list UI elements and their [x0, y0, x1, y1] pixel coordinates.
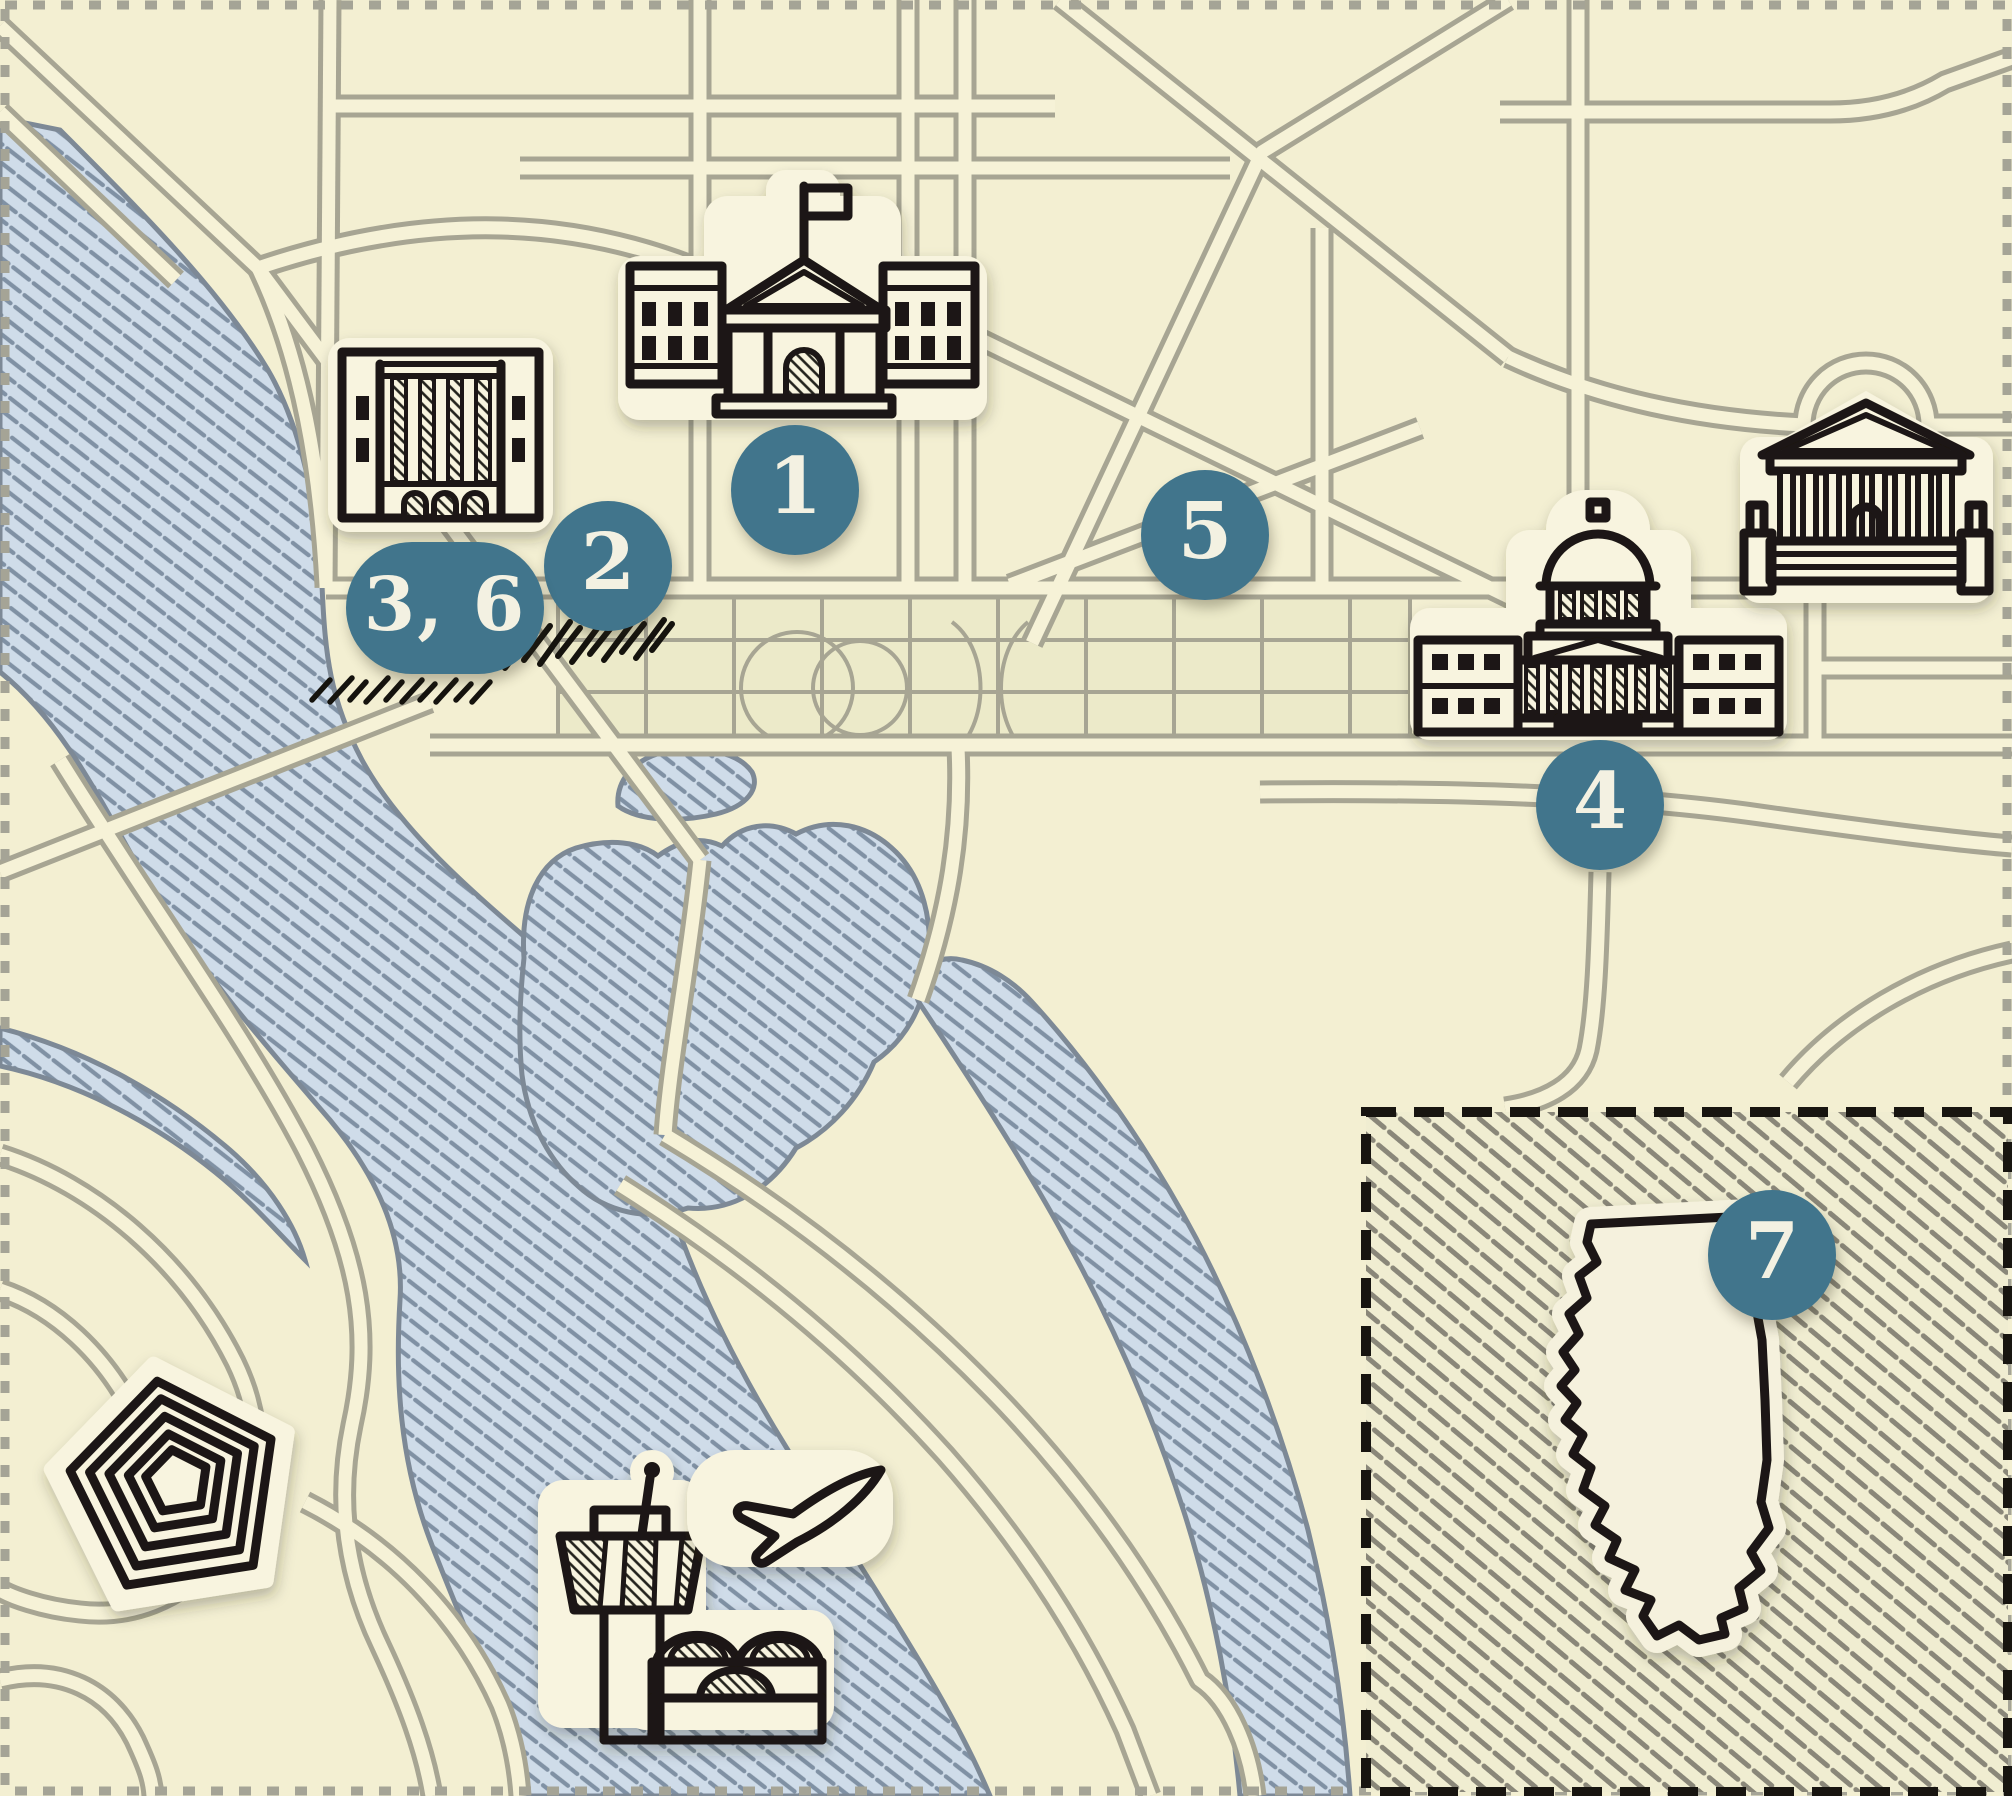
marker-1-label: 1 [768, 448, 822, 526]
marker-4[interactable]: 4 [1536, 740, 1664, 870]
marker-4-label: 4 [1573, 763, 1627, 841]
marker-2[interactable]: 2 [544, 501, 672, 631]
national-mall-grid [558, 590, 1410, 745]
airplane-icon[interactable] [687, 1450, 893, 1567]
classical-building-icon[interactable] [328, 338, 553, 532]
marker-1[interactable]: 1 [731, 425, 859, 555]
map-canvas: .rc{fill:none;stroke:#a7a593;stroke-widt… [0, 0, 2012, 1796]
map-artwork: .rc{fill:none;stroke:#a7a593;stroke-widt… [0, 0, 2012, 1796]
marker-2-label: 2 [581, 524, 635, 602]
marker-3-6[interactable]: 3, 6 [346, 542, 544, 674]
marker-7[interactable]: 7 [1708, 1190, 1836, 1320]
marker-7-label: 7 [1745, 1213, 1799, 1291]
marker-5[interactable]: 5 [1141, 470, 1269, 600]
marker-5-label: 5 [1178, 493, 1232, 571]
marker-3-6-label: 3, 6 [364, 568, 527, 642]
inset-box [1366, 1112, 2008, 1792]
